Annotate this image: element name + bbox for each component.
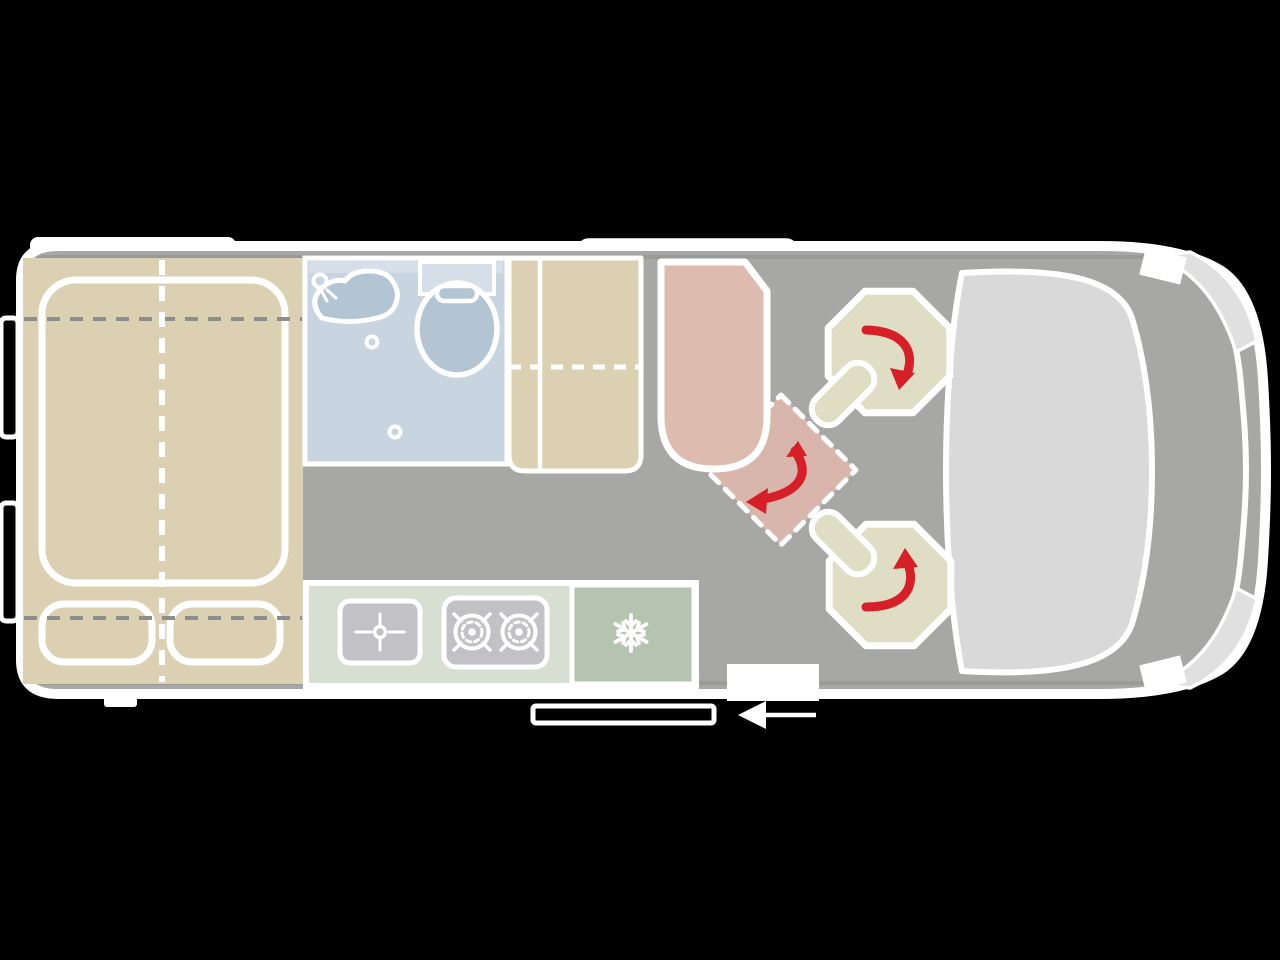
kitchen (306, 583, 696, 686)
pillow-right (170, 604, 280, 662)
bathroom (305, 258, 507, 464)
pillow-left (42, 604, 152, 662)
rear-door-left-marker (1, 318, 18, 437)
toilet-lid (437, 286, 477, 301)
rear-double-bed (23, 258, 303, 684)
windshield-dashboard (946, 271, 1152, 672)
entry-step (727, 664, 819, 701)
floorplan-canvas (0, 0, 1280, 960)
kitchen-sink (340, 601, 420, 663)
sliding-door-indicator (533, 706, 714, 723)
campervan-floorplan (0, 0, 1280, 960)
bench-seat (661, 262, 767, 469)
rear-door-right-marker (1, 503, 18, 621)
wardrobe (509, 258, 641, 471)
hob (444, 598, 547, 667)
